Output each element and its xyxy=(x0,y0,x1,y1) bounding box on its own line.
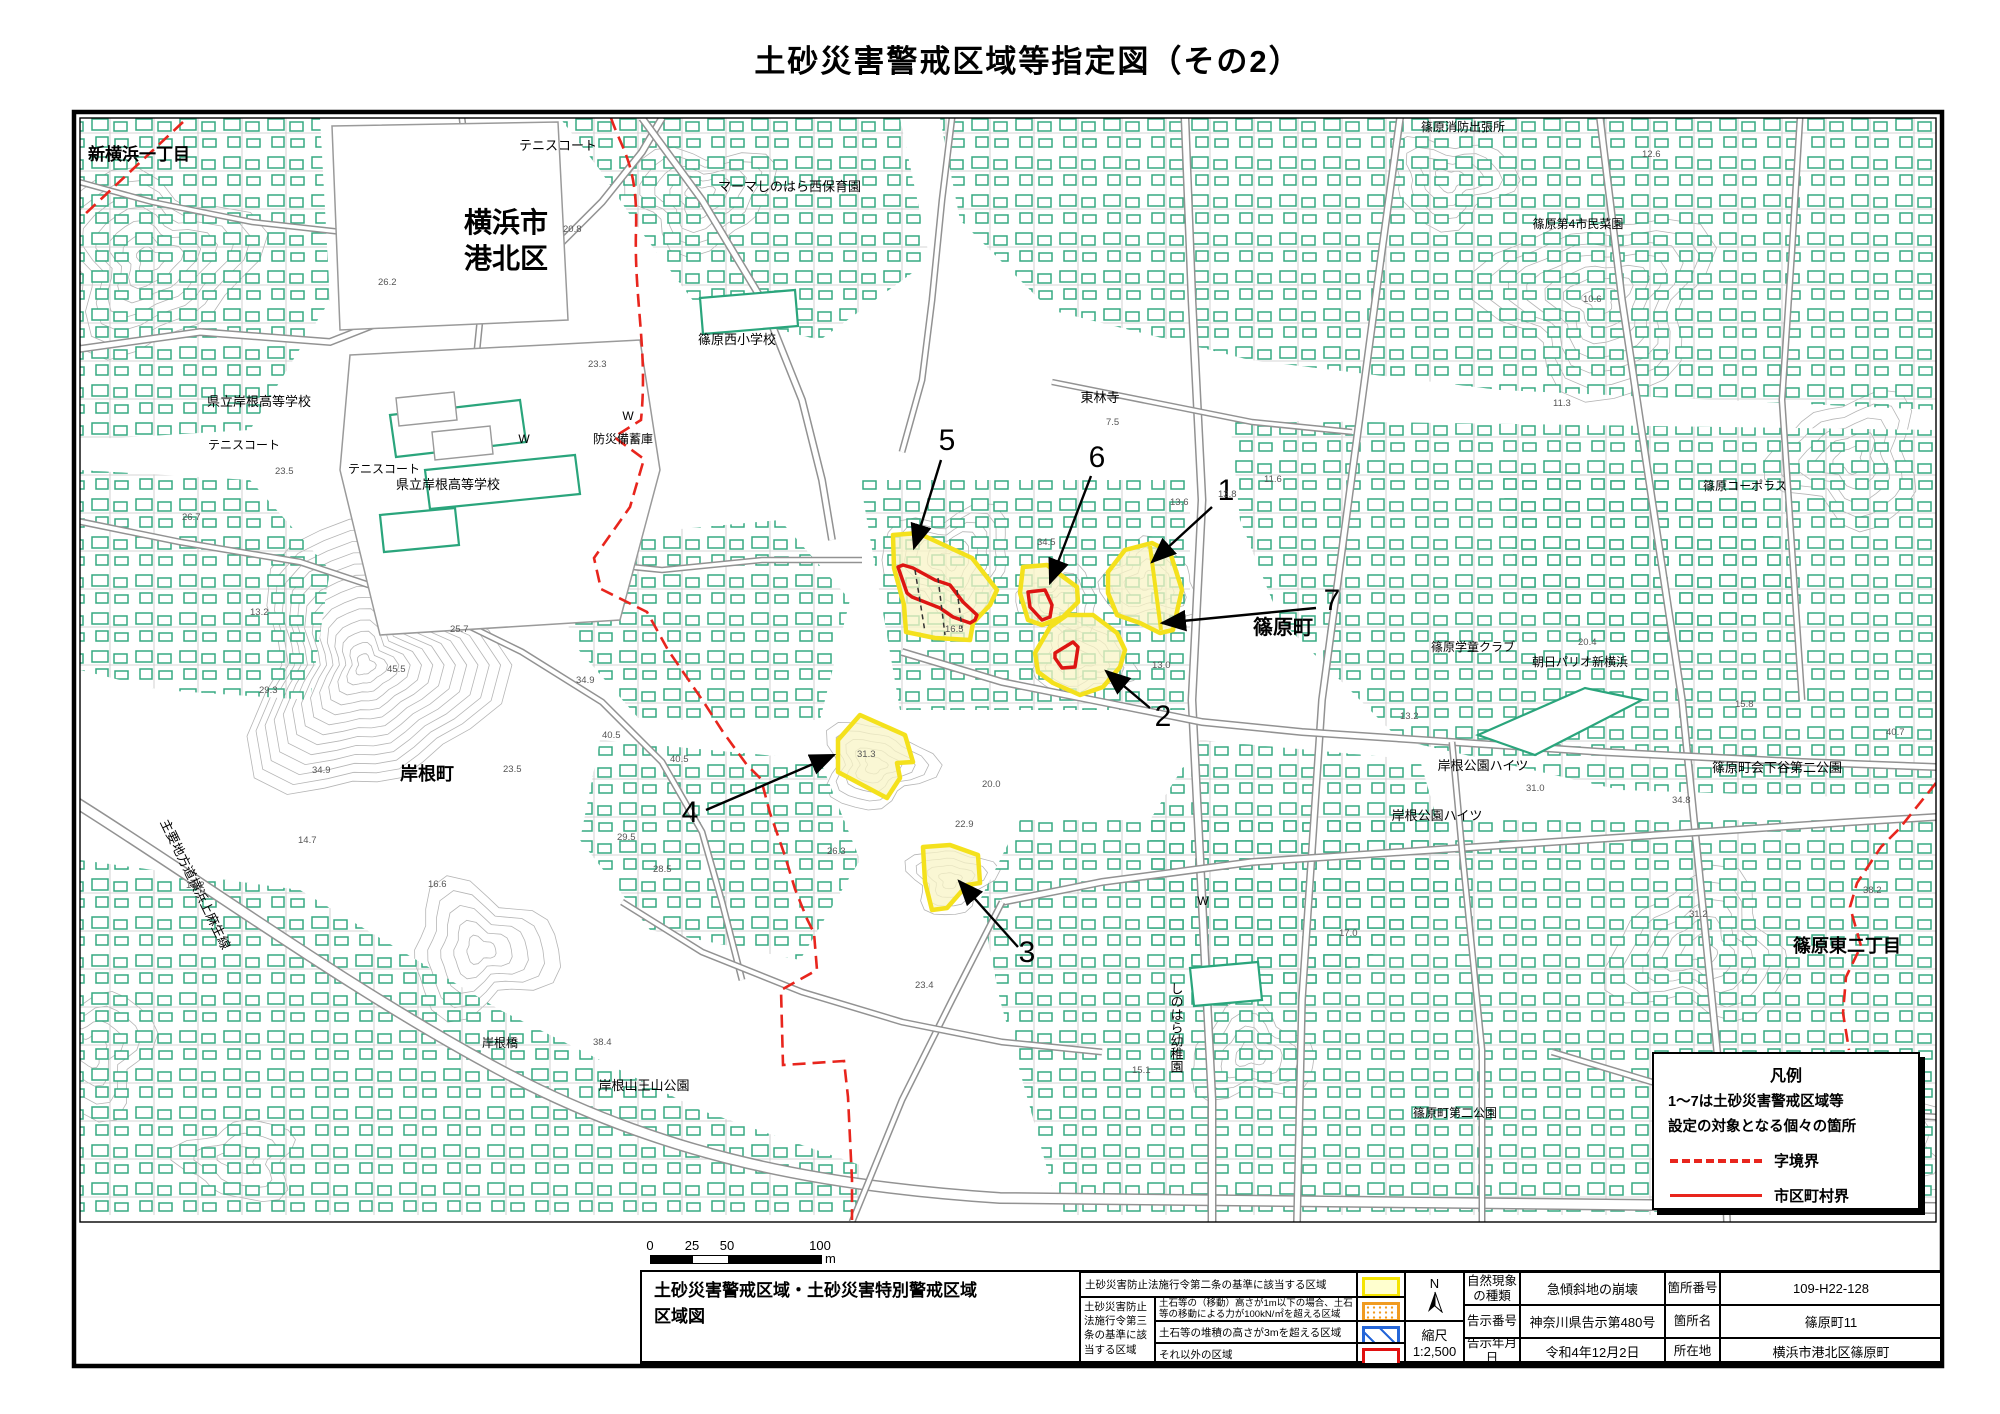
spot-elevation: 13.2 xyxy=(186,880,205,891)
well-symbol: W xyxy=(518,432,530,446)
spot-elevation: 45.5 xyxy=(387,664,406,675)
field-label-phenomenon: 自然現象の種類 xyxy=(1464,1272,1520,1305)
spot-elevation: 20.4 xyxy=(1578,637,1597,648)
info-table: 土砂災害警戒区域・土砂災害特別警戒区域 区域図 土砂災害防止法施行令第二条の基準… xyxy=(640,1270,1942,1366)
spot-elevation: 13.2 xyxy=(1400,711,1419,722)
hazard-zone-4 xyxy=(838,715,913,798)
spot-elevation: 17.0 xyxy=(1339,928,1358,939)
orange-zone-swatch xyxy=(1362,1302,1400,1321)
place-label: 岸根公園ハイツ xyxy=(1392,808,1483,823)
scale-tick: 50 xyxy=(720,1238,734,1253)
scale-label: 縮尺 xyxy=(1406,1325,1463,1344)
tennis-court xyxy=(432,426,493,460)
place-label: 篠原消防出張所 xyxy=(1421,119,1505,134)
spot-elevation: 13.6 xyxy=(1170,497,1189,508)
place-label: テニスコート xyxy=(208,438,280,452)
spot-elevation: 40.5 xyxy=(602,730,621,741)
scale-tick: 0 xyxy=(646,1238,653,1253)
place-label: 篠原コーポラス xyxy=(1703,478,1787,493)
place-label: テニスコート xyxy=(519,138,597,153)
zone-number-3: 3 xyxy=(1019,936,1036,969)
contour-line xyxy=(467,935,496,964)
sheet-subtitle-line2: 区域図 xyxy=(654,1304,1079,1330)
place-label: マーマしのはら西保育園 xyxy=(718,179,861,194)
blue-zone-swatch xyxy=(1362,1326,1400,1343)
spot-elevation: 29.5 xyxy=(617,832,636,843)
spot-elevation: 22.9 xyxy=(955,819,974,830)
field-value-phenomenon: 急傾斜地の崩壊 xyxy=(1520,1272,1665,1305)
spot-elevation: 38.4 xyxy=(593,1037,612,1048)
north-arrow-cell: N xyxy=(1405,1272,1464,1321)
legend-title: 凡例 xyxy=(1654,1062,1918,1086)
place-label: 新横浜一丁目 xyxy=(88,144,190,164)
spot-elevation: 11.6 xyxy=(1264,474,1282,485)
zone-number-6: 6 xyxy=(1089,441,1106,474)
spot-elevation: 23.5 xyxy=(503,764,522,775)
field-label-location: 所在地 xyxy=(1665,1338,1720,1364)
urban-block xyxy=(80,470,330,700)
spot-elevation: 14.7 xyxy=(298,835,317,846)
spot-elevation: 34.5 xyxy=(1037,537,1056,548)
spot-elevation: 34.9 xyxy=(312,765,331,776)
spot-elevation: 26.7 xyxy=(182,512,201,523)
field-value-notice-date: 令和4年12月2日 xyxy=(1520,1338,1665,1364)
legend-group-article3: 土砂災害防止法施行令第三条の基準に該当する区域 xyxy=(1080,1297,1155,1364)
place-label: 篠原学童クラブ xyxy=(1431,639,1515,654)
spot-elevation: 26.2 xyxy=(378,277,397,288)
zone-number-5: 5 xyxy=(939,424,956,457)
place-label: 県立岸根高等学校 xyxy=(207,394,311,409)
place-label: 岸根橋 xyxy=(482,1036,518,1050)
spot-elevation: 13.2 xyxy=(250,607,269,618)
place-label: 朝日パリオ新横浜 xyxy=(1532,654,1628,669)
legend-row-other: それ以外の区域 xyxy=(1155,1343,1357,1364)
red-zone-swatch xyxy=(1362,1348,1400,1364)
legend-row-move-force: 土石等の（移動）高さが1m以下の場合、土石等の移動による力が100kN/㎡を超え… xyxy=(1155,1297,1357,1321)
swatch-yellow-cell xyxy=(1357,1272,1405,1297)
tennis-court xyxy=(396,392,457,426)
spot-elevation: 31.2 xyxy=(1689,909,1708,920)
spot-elevation: 7.5 xyxy=(1106,417,1119,428)
well-symbol: W xyxy=(1197,894,1209,908)
scale-tick: 25 xyxy=(685,1238,699,1253)
elementary-school-building xyxy=(700,290,798,334)
legend-note-line2: 設定の対象となる個々の箇所 xyxy=(1668,1115,1918,1136)
yellow-zone-swatch xyxy=(1362,1277,1400,1297)
field-label-notice-number: 告示番号 xyxy=(1464,1305,1520,1338)
contour-line xyxy=(454,920,512,979)
spot-elevation: 15.1 xyxy=(1132,1065,1151,1076)
swatch-orange-cell xyxy=(1357,1297,1405,1321)
scale-bar-graphic xyxy=(650,1255,822,1264)
map-legend-box: 凡例 1〜7は土砂災害警戒区域等 設定の対象となる個々の箇所 字境界 市区町村界 xyxy=(1652,1052,1920,1210)
spot-elevation: 40.5 xyxy=(670,754,689,765)
spot-elevation: 23.3 xyxy=(588,359,607,370)
spot-elevation: 16.6 xyxy=(428,879,447,890)
spot-elevation: 38.2 xyxy=(1863,885,1882,896)
north-arrow-icon xyxy=(1426,1291,1444,1313)
solid-boundary-label: 市区町村界 xyxy=(1774,1185,1849,1206)
legend-row-article2: 土砂災害防止法施行令第二条の基準に該当する区域 xyxy=(1080,1272,1357,1297)
spot-elevation: 10.6 xyxy=(1583,294,1602,305)
field-label-site-number: 箇所番号 xyxy=(1665,1272,1720,1305)
hazard-zone-3 xyxy=(923,845,980,910)
sheet-subtitle: 土砂災害警戒区域・土砂災害特別警戒区域 区域図 xyxy=(642,1272,1080,1364)
dashed-boundary-sample xyxy=(1670,1159,1762,1163)
zone-number-4: 4 xyxy=(682,796,699,829)
place-label: 岸根山王山公園 xyxy=(598,1078,689,1093)
field-value-site-number: 109-H22-128 xyxy=(1720,1272,1942,1305)
place-label: 篠原第4市民菜園 xyxy=(1533,216,1624,231)
spot-elevation: 15.8 xyxy=(1735,699,1754,710)
spot-elevation: 28.5 xyxy=(653,864,672,875)
place-label: 県立岸根高等学校 xyxy=(396,477,500,492)
zone-number-7: 7 xyxy=(1324,584,1341,617)
zone-number-2: 2 xyxy=(1155,700,1172,733)
place-label: 岸根公園ハイツ xyxy=(1438,758,1529,773)
scale-cell: 縮尺 1:2,500 xyxy=(1405,1321,1464,1364)
sheet-subtitle-line1: 土砂災害警戒区域・土砂災害特別警戒区域 xyxy=(654,1278,1079,1304)
place-label: 防災備蓄庫 xyxy=(593,431,653,446)
spot-elevation: 20.0 xyxy=(982,779,1001,790)
spot-elevation: 34.8 xyxy=(1672,795,1691,806)
north-label: N xyxy=(1406,1276,1463,1291)
spot-elevation: 25.7 xyxy=(450,624,469,635)
spot-elevation: 29.3 xyxy=(259,685,278,696)
solid-boundary-sample xyxy=(1670,1194,1762,1197)
swatch-red-cell xyxy=(1357,1343,1405,1364)
contour-line xyxy=(347,643,388,685)
kindergarten-building xyxy=(1190,962,1262,1006)
place-label: 篠原東二丁目 xyxy=(1793,935,1901,956)
field-label-site-name: 箇所名 xyxy=(1665,1305,1720,1338)
spot-elevation: 40.7 xyxy=(1886,727,1905,738)
place-label: 岸根町 xyxy=(400,763,454,784)
place-label: 港北区 xyxy=(464,243,548,274)
spot-elevation: 23.4 xyxy=(915,980,934,991)
spot-elevation: 13.0 xyxy=(1152,660,1171,671)
place-label: しのはら幼稚園 xyxy=(1169,982,1184,1073)
spot-elevation: 20.8 xyxy=(563,224,582,235)
place-label: 篠原町会下谷第二公園 xyxy=(1712,760,1842,775)
dashed-boundary-label: 字境界 xyxy=(1774,1150,1819,1171)
urban-block xyxy=(80,118,330,440)
spot-elevation: 11.3 xyxy=(1553,398,1571,409)
field-value-site-name: 篠原町11 xyxy=(1720,1305,1942,1338)
urban-block xyxy=(580,740,860,960)
place-label: 横浜市 xyxy=(464,206,548,238)
spot-elevation: 12.6 xyxy=(1642,149,1661,160)
well-symbol: W xyxy=(622,409,634,423)
legend-note-line1: 1〜7は土砂災害警戒区域等 xyxy=(1668,1090,1918,1111)
swatch-blue-cell xyxy=(1357,1321,1405,1343)
field-value-location: 横浜市港北区篠原町 xyxy=(1720,1338,1942,1364)
scale-unit: m xyxy=(825,1251,836,1266)
field-label-notice-date: 告示年月日 xyxy=(1464,1338,1520,1364)
spot-elevation: 34.9 xyxy=(576,675,595,686)
place-label: 篠原町 xyxy=(1253,615,1313,639)
place-label: 篠原西小学校 xyxy=(698,332,776,347)
contour-line xyxy=(356,654,376,675)
place-label: テニスコート xyxy=(348,462,420,476)
spot-elevation: 23.5 xyxy=(275,466,294,477)
spot-elevation: 13.8 xyxy=(1218,489,1237,500)
spot-elevation: 16.5 xyxy=(945,624,964,635)
spot-elevation: 31.0 xyxy=(1526,783,1545,794)
legend-row-deposit: 土石等の堆積の高さが3mを超える区域 xyxy=(1155,1321,1357,1343)
field-value-notice-number: 神奈川県告示第480号 xyxy=(1520,1305,1665,1338)
place-label: 篠原町第二公園 xyxy=(1413,1105,1497,1120)
spot-elevation: 26.3 xyxy=(827,846,846,857)
place-label: 東林寺 xyxy=(1080,390,1119,405)
spot-elevation: 31.3 xyxy=(857,749,876,760)
scale-value: 1:2,500 xyxy=(1406,1344,1463,1359)
scale-bar: 0 25 50 100 m xyxy=(648,1238,898,1268)
school-building xyxy=(380,508,459,552)
